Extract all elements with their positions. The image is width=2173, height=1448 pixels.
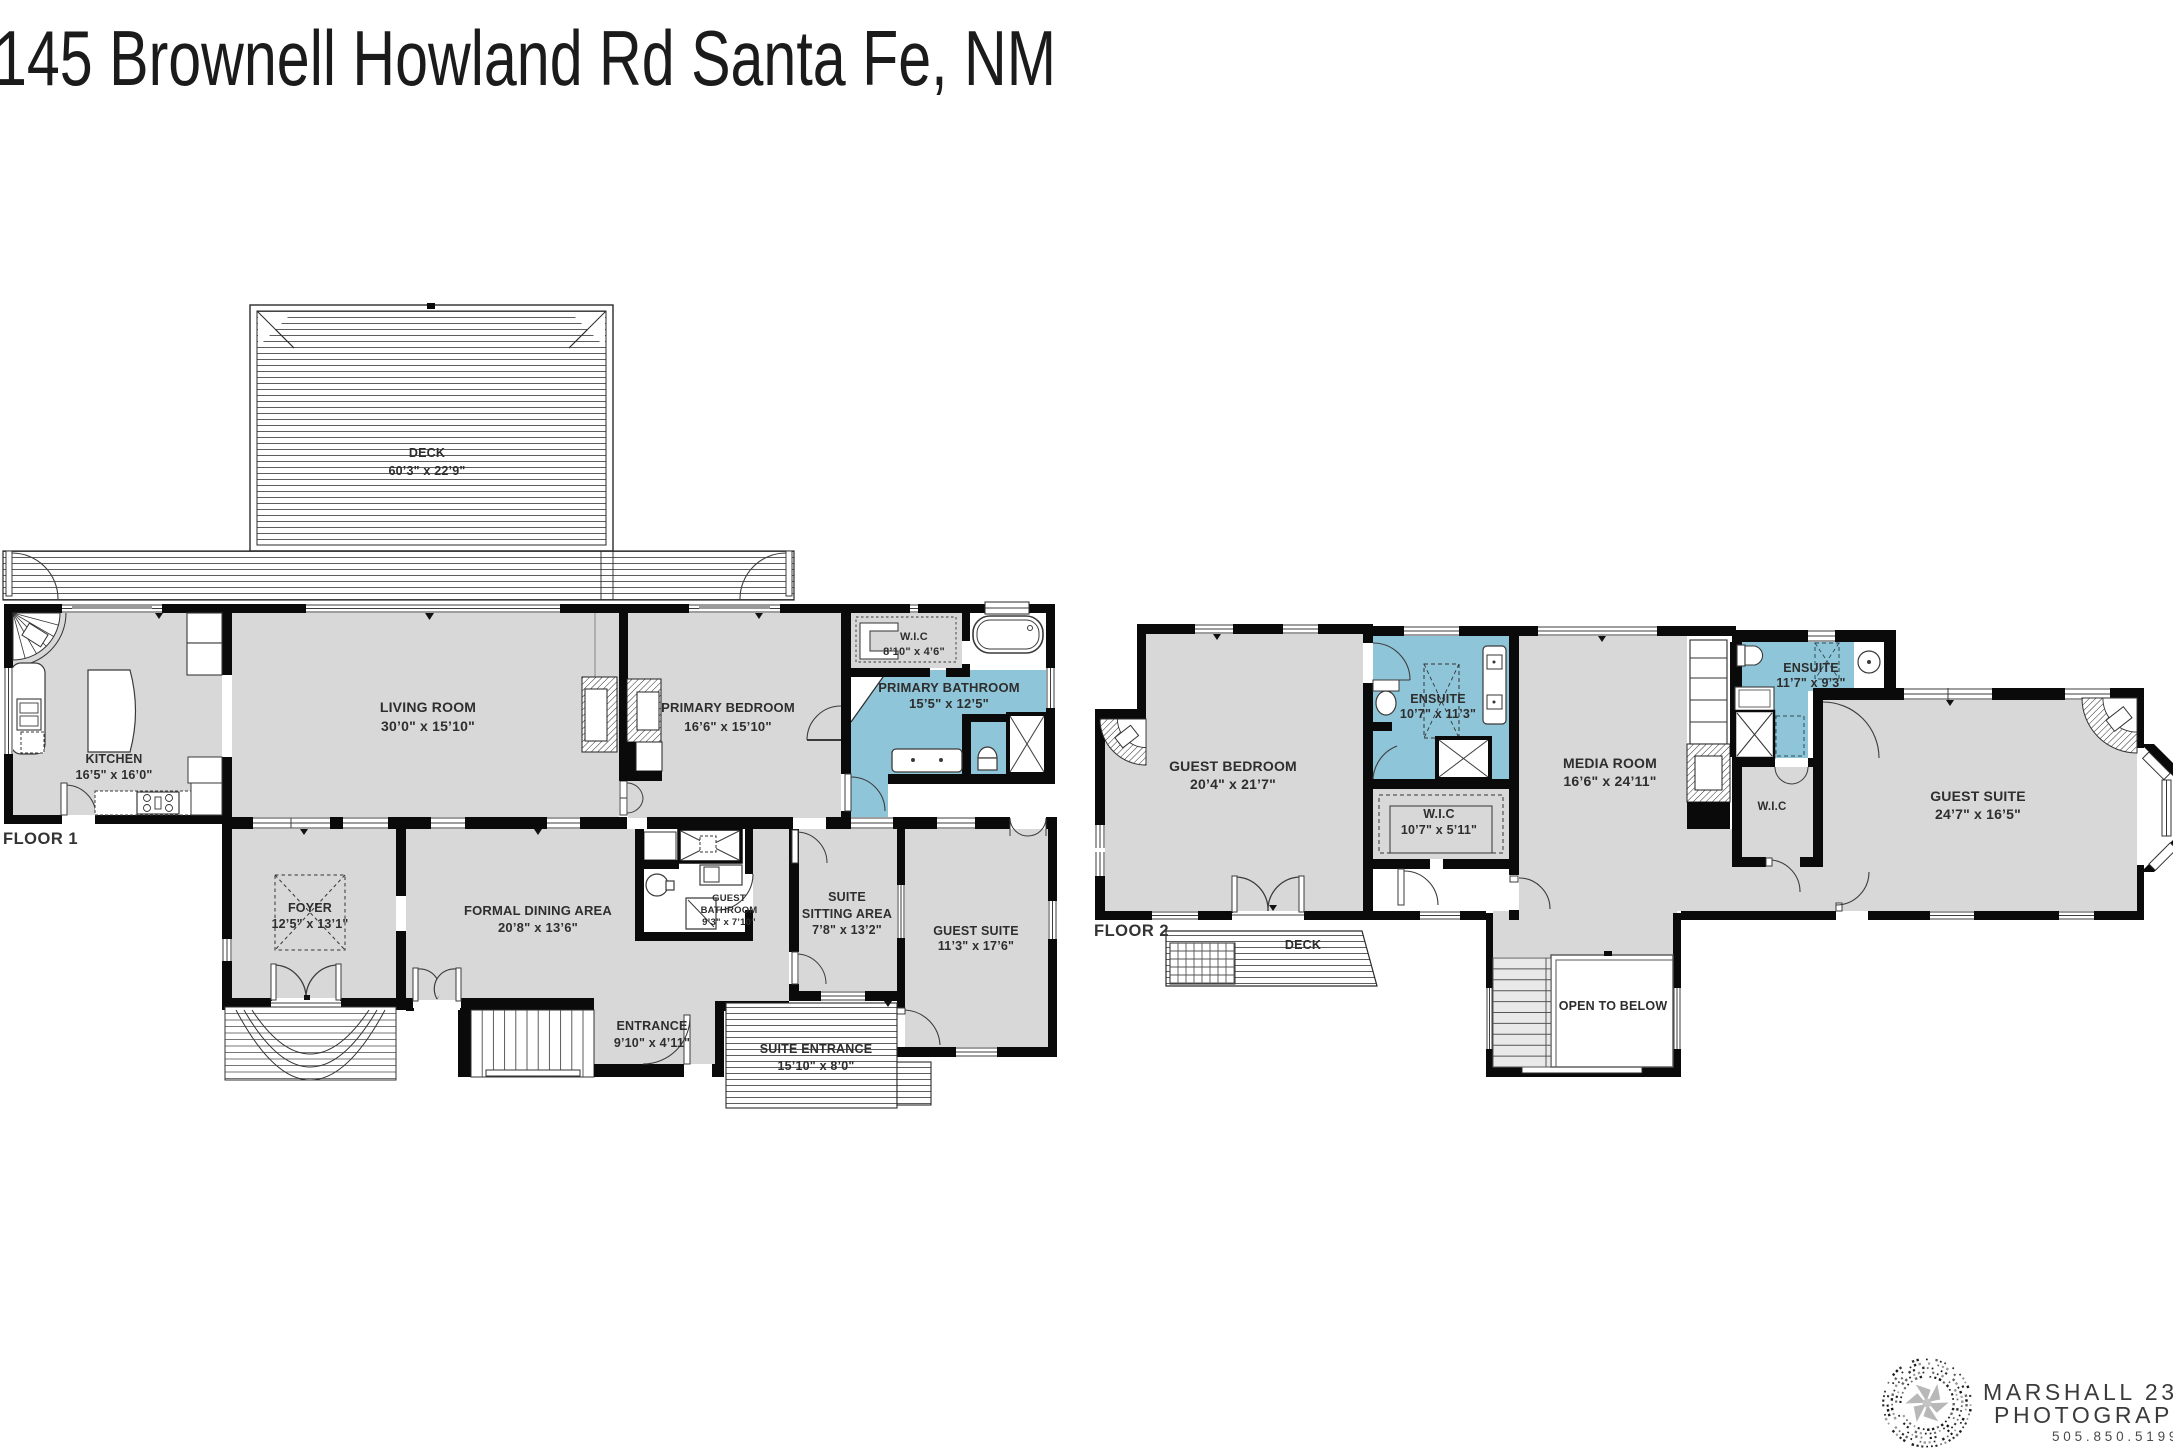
svg-text:8’10" x 4’6": 8’10" x 4’6" bbox=[883, 646, 945, 658]
svg-text:12’5" x 13’1": 12’5" x 13’1" bbox=[271, 917, 348, 931]
svg-text:16’6" x 24’11": 16’6" x 24’11" bbox=[1563, 773, 1656, 789]
svg-text:10’7" x 11’3": 10’7" x 11’3" bbox=[1400, 707, 1476, 721]
svg-text:FLOOR 1: FLOOR 1 bbox=[3, 830, 78, 848]
svg-text:SUITE: SUITE bbox=[828, 890, 866, 904]
svg-text:W.I.C: W.I.C bbox=[900, 631, 928, 643]
svg-text:GUEST SUITE: GUEST SUITE bbox=[1930, 788, 2026, 804]
svg-text:PRIMARY BATHROOM: PRIMARY BATHROOM bbox=[878, 680, 1020, 695]
svg-text:FOYER: FOYER bbox=[288, 901, 332, 915]
svg-text:OPEN TO BELOW: OPEN TO BELOW bbox=[1559, 999, 1668, 1013]
svg-text:DECK: DECK bbox=[1285, 938, 1321, 952]
svg-text:FLOOR 2: FLOOR 2 bbox=[1094, 922, 1169, 940]
svg-text:24’7" x 16’5": 24’7" x 16’5" bbox=[1935, 806, 2021, 822]
svg-text:BATHROOM: BATHROOM bbox=[701, 905, 758, 916]
svg-text:LIVING ROOM: LIVING ROOM bbox=[380, 699, 476, 715]
svg-text:11’7" x 9’3": 11’7" x 9’3" bbox=[1776, 676, 1845, 690]
svg-text:10’7" x 5’11": 10’7" x 5’11" bbox=[1401, 823, 1477, 837]
svg-text:30’0" x 15’10": 30’0" x 15’10" bbox=[381, 718, 475, 734]
svg-text:SITTING AREA: SITTING AREA bbox=[802, 907, 892, 921]
svg-text:W.I.C: W.I.C bbox=[1423, 807, 1455, 821]
svg-text:16’5" x 16’0": 16’5" x 16’0" bbox=[75, 768, 152, 782]
svg-text:MEDIA ROOM: MEDIA ROOM bbox=[1563, 755, 1657, 771]
svg-text:ENTRANCE: ENTRANCE bbox=[616, 1019, 687, 1033]
svg-text:KITCHEN: KITCHEN bbox=[86, 752, 143, 766]
svg-text:GUEST BEDROOM: GUEST BEDROOM bbox=[1169, 758, 1297, 774]
svg-text:PRIMARY BEDROOM: PRIMARY BEDROOM bbox=[661, 700, 795, 715]
svg-text:SUITE ENTRANCE: SUITE ENTRANCE bbox=[760, 1042, 873, 1056]
svg-text:ENSUITE: ENSUITE bbox=[1410, 692, 1466, 706]
svg-text:16’6" x 15’10": 16’6" x 15’10" bbox=[684, 719, 771, 734]
svg-text:GUEST SUITE: GUEST SUITE bbox=[933, 924, 1019, 938]
svg-text:505.850.5199: 505.850.5199 bbox=[2052, 1429, 2173, 1444]
svg-text:20’4" x 21’7": 20’4" x 21’7" bbox=[1190, 776, 1276, 792]
svg-text:FORMAL DINING AREA: FORMAL DINING AREA bbox=[464, 903, 612, 918]
svg-text:11’3" x 17’6": 11’3" x 17’6" bbox=[938, 939, 1014, 953]
svg-text:PHOTOGRAPHY: PHOTOGRAPHY bbox=[1994, 1402, 2173, 1428]
svg-text:60’3" x 22’9": 60’3" x 22’9" bbox=[388, 464, 465, 478]
svg-text:GUEST: GUEST bbox=[712, 893, 746, 904]
svg-text:15’5" x 12’5": 15’5" x 12’5" bbox=[909, 696, 989, 711]
svg-text:9’3" x 7’10": 9’3" x 7’10" bbox=[702, 917, 756, 928]
svg-text:DECK: DECK bbox=[409, 446, 445, 460]
svg-text:W.I.C: W.I.C bbox=[1757, 801, 1786, 813]
svg-text:145 Brownell Howland Rd Santa: 145 Brownell Howland Rd Santa Fe, NM bbox=[0, 14, 1056, 102]
svg-text:15’10" x 8’0": 15’10" x 8’0" bbox=[777, 1059, 854, 1073]
svg-text:ENSUITE: ENSUITE bbox=[1783, 661, 1839, 675]
svg-text:20’8" x 13’6": 20’8" x 13’6" bbox=[498, 920, 578, 935]
svg-text:7’8" x 13’2": 7’8" x 13’2" bbox=[812, 923, 882, 937]
svg-text:9’10" x 4’11": 9’10" x 4’11" bbox=[614, 1036, 690, 1050]
